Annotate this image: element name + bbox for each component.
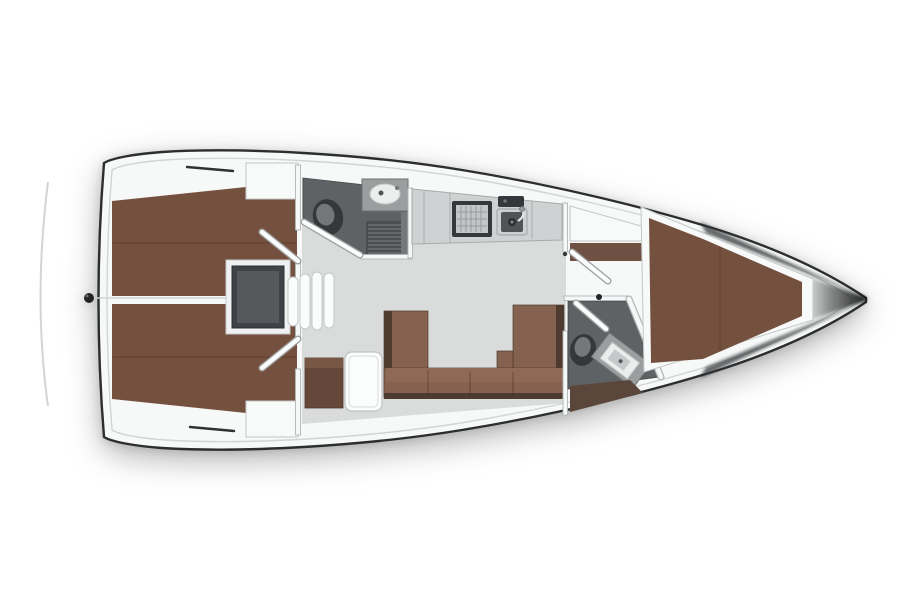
yacht-floorplan-image	[0, 0, 900, 600]
engine-box-inner	[237, 271, 279, 323]
aft-locker-starboard	[246, 401, 298, 437]
yacht-floorplan-svg	[0, 0, 900, 600]
aft-bulkhead-wall	[296, 369, 301, 435]
aft-locker-port	[246, 163, 298, 199]
forward-bulkhead-wall	[563, 331, 568, 415]
galley-sink	[497, 196, 527, 235]
basin-drain	[379, 191, 384, 196]
engine-compartment	[226, 260, 290, 334]
step-2	[300, 274, 310, 329]
table-top	[345, 352, 382, 411]
stern-fitting	[84, 293, 94, 303]
head-front-wall	[360, 255, 412, 260]
settee-bench-cushion	[386, 368, 563, 382]
door-latch-fitting	[596, 294, 602, 300]
sink-tray-knob	[503, 199, 506, 202]
basin-tap	[395, 186, 399, 190]
forward-bulkhead-wall	[563, 203, 568, 252]
sink-tray	[498, 196, 524, 207]
sink-drain-cap	[511, 221, 514, 224]
step-1	[288, 277, 298, 326]
transom-arc	[41, 182, 49, 406]
washbasin-unit	[362, 179, 408, 211]
salon-table	[345, 352, 382, 411]
side-cabinet	[305, 358, 343, 408]
step-4	[324, 273, 334, 328]
door-hinge-fitting	[563, 252, 567, 256]
boat-hull-group	[84, 150, 866, 449]
step-3	[312, 272, 322, 330]
aft-bulkhead-wall	[296, 165, 301, 230]
head-side-cabinet	[401, 212, 408, 256]
cabinet-top	[305, 358, 343, 368]
settee-bench-front	[384, 393, 565, 399]
faucet-base	[520, 207, 525, 212]
stern-fitting-highlight	[86, 295, 89, 298]
stove	[452, 201, 492, 237]
